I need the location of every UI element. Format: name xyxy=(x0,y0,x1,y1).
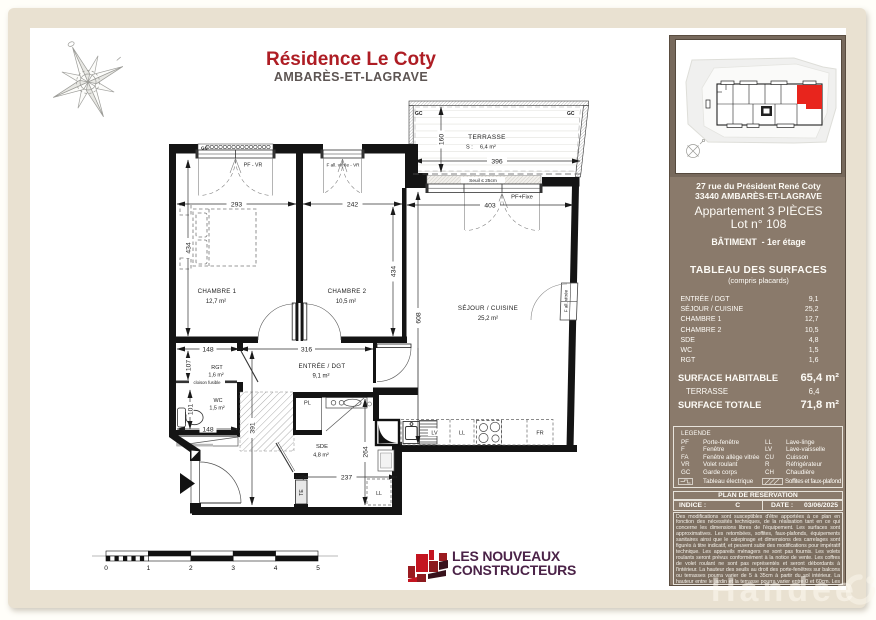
svg-text:S :: S : xyxy=(466,145,473,151)
svg-text:GC: GC xyxy=(567,111,575,117)
svg-text:0: 0 xyxy=(104,565,108,572)
svg-text:434: 434 xyxy=(390,266,397,278)
svg-text:148: 148 xyxy=(202,426,214,433)
svg-text:LV: LV xyxy=(431,431,438,437)
svg-text:TERRASSE: TERRASSE xyxy=(468,134,506,141)
svg-text:TE: TE xyxy=(299,489,305,496)
svg-text:5: 5 xyxy=(316,565,320,572)
svg-text:RGT: RGT xyxy=(211,365,223,371)
svg-text:396: 396 xyxy=(491,158,503,165)
svg-text:12,7 m²: 12,7 m² xyxy=(206,299,226,305)
svg-text:WC: WC xyxy=(214,398,223,404)
svg-text:9,1 m²: 9,1 m² xyxy=(312,374,329,380)
svg-text:293: 293 xyxy=(231,201,243,208)
svg-text:CHAMBRE 2: CHAMBRE 2 xyxy=(328,288,367,295)
svg-text:4: 4 xyxy=(274,565,278,572)
svg-text:107: 107 xyxy=(185,360,192,372)
svg-text:148: 148 xyxy=(202,346,214,353)
svg-text:242: 242 xyxy=(347,201,359,208)
svg-text:PL: PL xyxy=(304,401,311,407)
svg-text:101: 101 xyxy=(187,404,194,416)
svg-text:ENTRÉE / DGT: ENTRÉE / DGT xyxy=(299,363,346,370)
svg-text:1: 1 xyxy=(147,565,151,572)
svg-text:PF+Fixe: PF+Fixe xyxy=(511,195,533,201)
svg-text:4,8 m²: 4,8 m² xyxy=(313,453,329,459)
svg-text:Seuil ≤ 25cm: Seuil ≤ 25cm xyxy=(469,178,497,184)
svg-text:6,4 m²: 6,4 m² xyxy=(480,145,496,151)
svg-text:CHAMBRE 1: CHAMBRE 1 xyxy=(198,288,237,295)
svg-text:237: 237 xyxy=(341,474,353,481)
svg-text:10,5 m²: 10,5 m² xyxy=(336,299,356,305)
svg-text:LL: LL xyxy=(376,491,382,497)
svg-text:cloison fusible: cloison fusible xyxy=(194,380,222,385)
svg-text:25,2 m²: 25,2 m² xyxy=(478,316,498,322)
svg-text:608: 608 xyxy=(415,312,422,324)
svg-text:1,5 m²: 1,5 m² xyxy=(209,406,224,412)
svg-text:403: 403 xyxy=(484,202,496,209)
svg-text:PF - VR: PF - VR xyxy=(244,163,263,169)
svg-text:316: 316 xyxy=(301,346,313,353)
svg-text:160: 160 xyxy=(438,134,445,146)
svg-text:F all. vitrée - VR: F all. vitrée - VR xyxy=(327,163,361,168)
svg-text:F all. vitrée: F all. vitrée xyxy=(564,289,569,312)
svg-text:LL: LL xyxy=(459,431,465,437)
svg-text:CONSTRUCTEURS: CONSTRUCTEURS xyxy=(452,562,576,578)
svg-text:GC: GC xyxy=(415,111,423,117)
svg-text:391: 391 xyxy=(249,422,256,434)
svg-text:3: 3 xyxy=(231,565,235,572)
svg-text:FR: FR xyxy=(536,431,543,437)
svg-text:SÉJOUR / CUISINE: SÉJOUR / CUISINE xyxy=(458,305,518,312)
svg-text:SDE: SDE xyxy=(316,444,328,450)
svg-text:1,6 m²: 1,6 m² xyxy=(208,373,223,379)
svg-text:434: 434 xyxy=(185,242,192,254)
svg-text:264: 264 xyxy=(362,446,369,458)
svg-text:2: 2 xyxy=(189,565,193,572)
